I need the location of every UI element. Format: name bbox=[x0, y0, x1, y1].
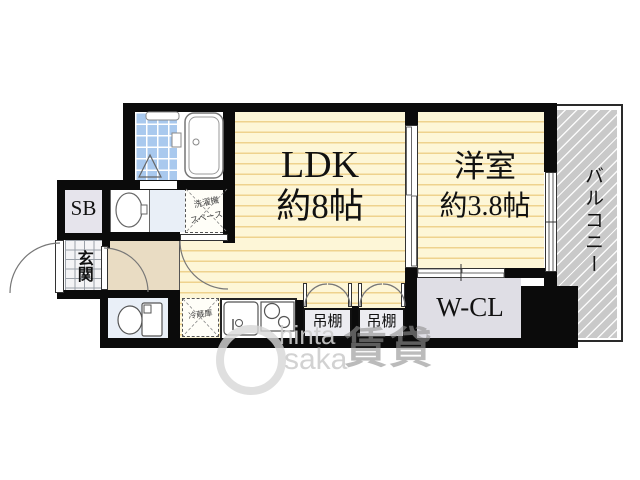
wall-shoebox-left bbox=[57, 180, 65, 240]
toilet-floor bbox=[108, 298, 168, 338]
wall-bottom bbox=[100, 338, 578, 348]
ldk-label: LDK bbox=[260, 146, 380, 186]
western-room-label: 洋室 bbox=[420, 151, 550, 184]
western-room-floor bbox=[418, 112, 544, 268]
entrance-hall-door-leaf bbox=[101, 246, 108, 290]
kitchen-counter bbox=[220, 298, 297, 340]
wall-shoebox-bottom bbox=[57, 233, 108, 240]
shelf1-left-door-leaf bbox=[303, 283, 307, 307]
hallway-ldk-divider bbox=[179, 240, 180, 290]
western-room-size-label: 約3.8帖 bbox=[415, 192, 555, 221]
bathroom-tile-floor bbox=[135, 112, 177, 180]
washbasin-counter bbox=[110, 188, 150, 233]
watermark-text-2: saka bbox=[284, 343, 347, 377]
wcl-label: W-CL bbox=[415, 293, 525, 321]
ldk-size-label: 約8帖 bbox=[250, 189, 390, 226]
shelf2-left-door-leaf bbox=[358, 283, 362, 307]
bathroom-tub-area bbox=[177, 112, 223, 180]
wall-toilet-right bbox=[168, 290, 180, 340]
wall-partition-stub bbox=[405, 103, 418, 125]
wall-top bbox=[123, 103, 556, 112]
shelf1-right-door-leaf bbox=[348, 283, 352, 307]
hanging-shelf-2-label: 吊棚 bbox=[358, 314, 405, 330]
wall-bath-ldk bbox=[223, 103, 235, 243]
bathroom-door bbox=[140, 180, 177, 190]
wall-washroom-hallway bbox=[103, 232, 180, 241]
hallway-floor bbox=[108, 240, 180, 290]
shelf2-right-door-leaf bbox=[401, 283, 405, 307]
pillar bbox=[521, 286, 578, 344]
shoebox-label: SB bbox=[65, 197, 102, 219]
balcony-window bbox=[545, 172, 557, 272]
wall-bath-bottom-left bbox=[57, 180, 140, 190]
wall-left-upper bbox=[123, 103, 135, 190]
floorplan-canvas: LDK 約8帖 洋室 約3.8帖 W-CL SB 玄関 バルコニー 吊棚 吊棚 … bbox=[0, 0, 640, 480]
balcony-label: バルコニー bbox=[582, 158, 602, 283]
front-door-leaf bbox=[55, 240, 64, 293]
hanging-shelf-1-label: 吊棚 bbox=[303, 314, 352, 330]
entrance-label: 玄関 bbox=[74, 241, 91, 291]
wall-ldk-door-stub bbox=[228, 232, 235, 243]
wcl-sliding-door bbox=[417, 268, 505, 278]
front-door-arc bbox=[10, 243, 60, 293]
ldk-door-leaf bbox=[180, 234, 228, 241]
